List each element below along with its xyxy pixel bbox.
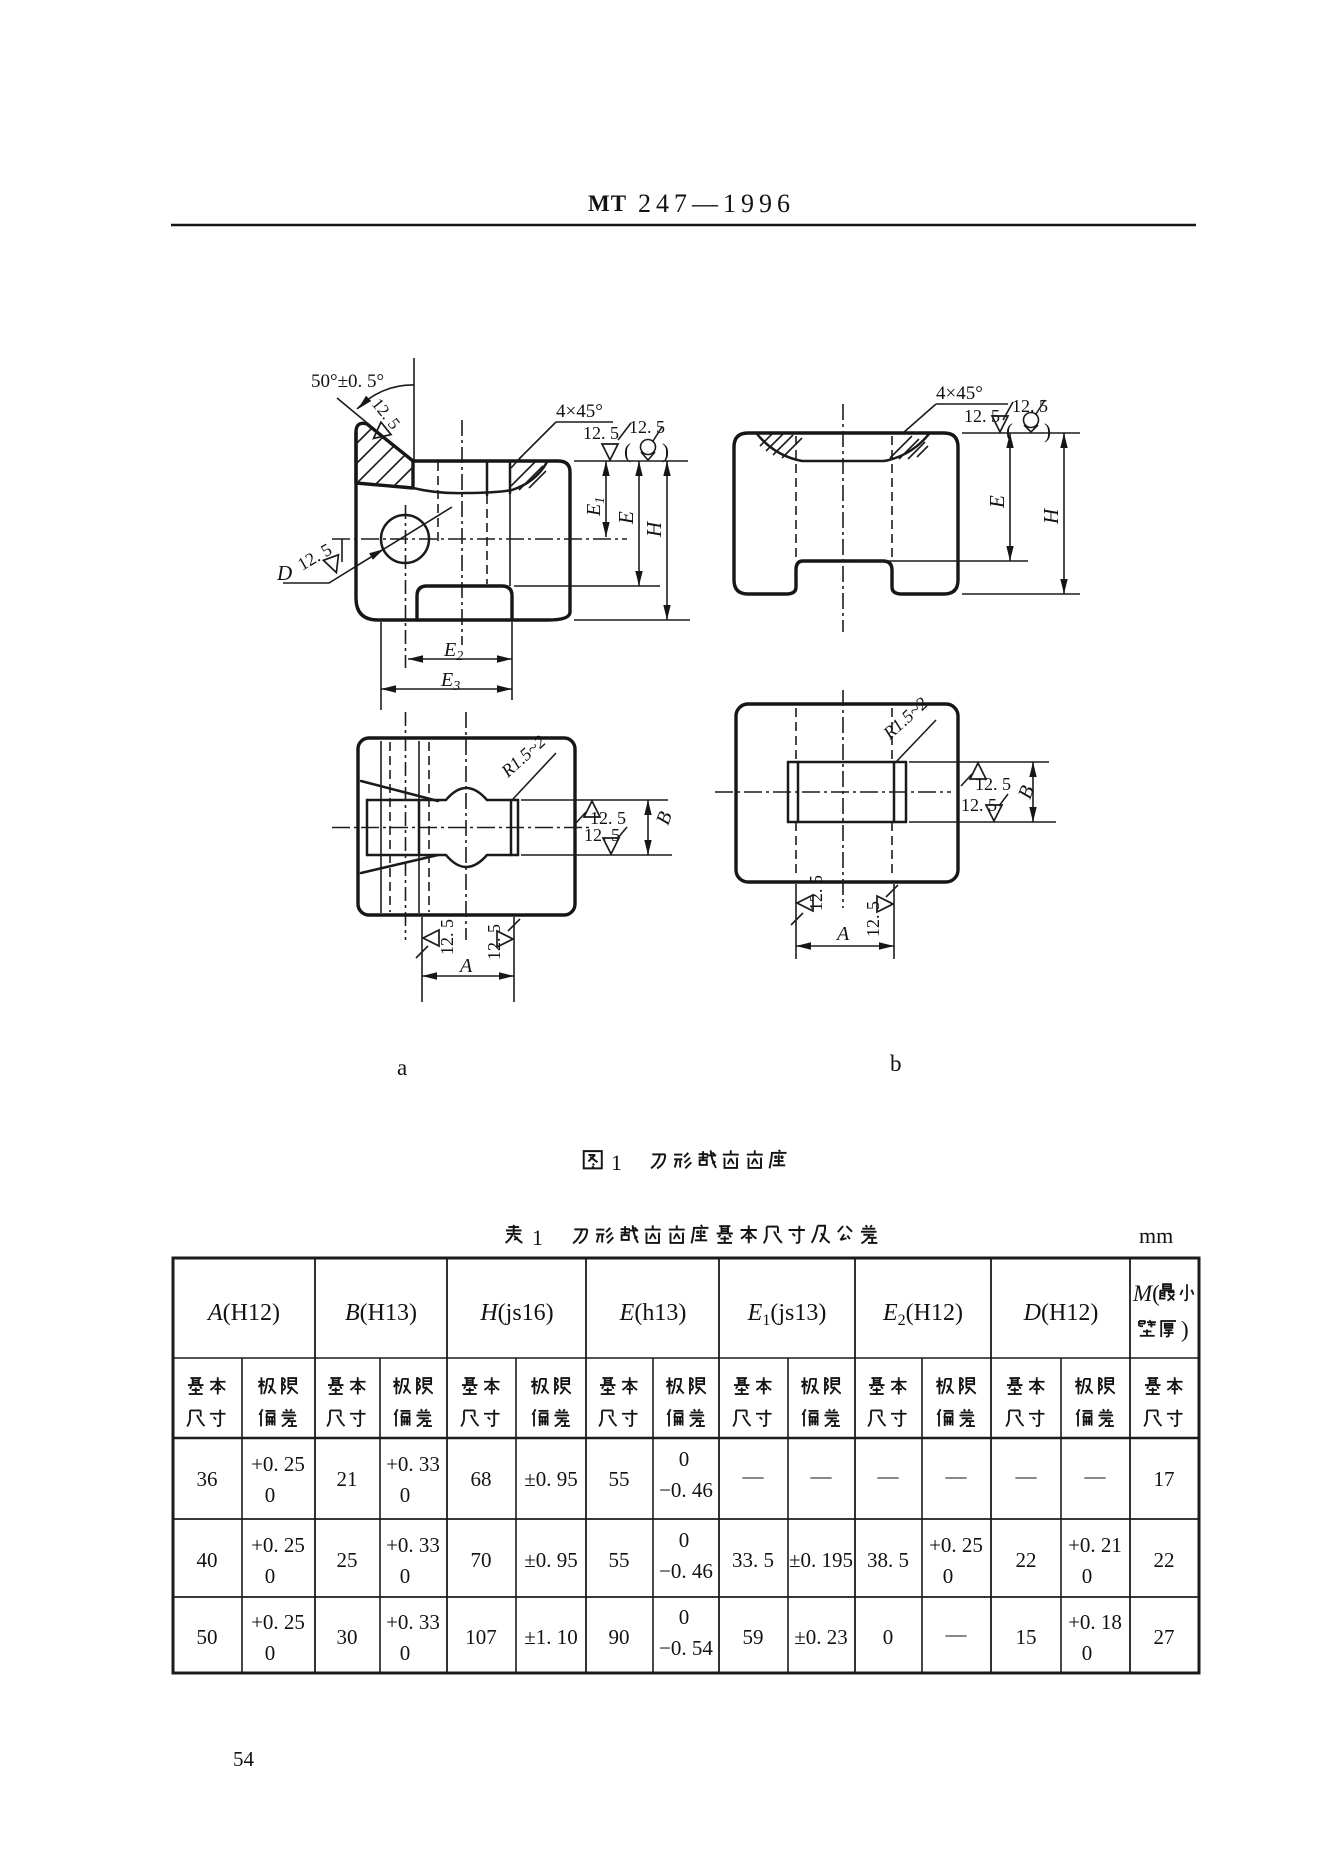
svg-text:12. 5: 12. 5 (975, 774, 1011, 794)
svg-text:0: 0 (1082, 1564, 1093, 1588)
svg-text:90: 90 (609, 1625, 630, 1649)
svg-text:±0. 23: ±0. 23 (794, 1625, 848, 1649)
svg-text:H: H (1039, 507, 1063, 525)
svg-text:+0. 25: +0. 25 (251, 1610, 305, 1634)
svg-text:): ) (662, 439, 669, 463)
svg-text:0: 0 (679, 1447, 690, 1471)
svg-text:0: 0 (679, 1528, 690, 1552)
svg-text:55: 55 (609, 1467, 630, 1491)
svg-text:—: — (1084, 1464, 1107, 1488)
svg-text:12. 5: 12. 5 (863, 901, 883, 937)
svg-text:H(js16): H(js16) (479, 1300, 553, 1326)
svg-text:M(: M( (1132, 1281, 1160, 1306)
svg-text:0: 0 (943, 1564, 954, 1588)
svg-text:D(H12): D(H12) (1023, 1300, 1099, 1326)
svg-text:12. 5: 12. 5 (584, 825, 620, 845)
svg-text:40: 40 (197, 1548, 218, 1572)
svg-text:±0. 95: ±0. 95 (524, 1548, 578, 1572)
svg-text:—: — (945, 1464, 968, 1488)
svg-text:+0. 18: +0. 18 (1068, 1610, 1122, 1634)
svg-text:0: 0 (1082, 1641, 1093, 1665)
svg-text:25: 25 (337, 1548, 358, 1572)
svg-text:0: 0 (679, 1605, 690, 1629)
svg-text:—: — (877, 1464, 900, 1488)
svg-text:22: 22 (1016, 1548, 1037, 1572)
svg-text:A: A (458, 955, 473, 977)
svg-text:1: 1 (532, 1225, 543, 1250)
svg-text:30: 30 (337, 1625, 358, 1649)
svg-text:27: 27 (1154, 1625, 1175, 1649)
svg-text:—: — (742, 1464, 765, 1488)
svg-text:12. 5: 12. 5 (583, 423, 619, 443)
svg-text:E2(H12): E2(H12) (882, 1300, 963, 1329)
svg-text:0: 0 (265, 1564, 276, 1588)
svg-text:38. 5: 38. 5 (867, 1548, 909, 1572)
svg-text:±0. 195: ±0. 195 (789, 1548, 853, 1572)
svg-text:50°±0. 5°: 50°±0. 5° (311, 371, 384, 392)
svg-text:−0. 46: −0. 46 (659, 1559, 713, 1583)
svg-text:54: 54 (233, 1747, 255, 1771)
svg-text:E1(js13): E1(js13) (747, 1300, 827, 1329)
svg-text:): ) (1181, 1317, 1189, 1342)
svg-text:15: 15 (1016, 1625, 1037, 1649)
svg-text:33. 5: 33. 5 (732, 1548, 774, 1572)
svg-text:—: — (1015, 1464, 1038, 1488)
svg-text:): ) (1044, 419, 1051, 443)
svg-text:D: D (276, 561, 292, 585)
svg-text:70: 70 (471, 1548, 492, 1572)
svg-text:0: 0 (400, 1483, 411, 1507)
svg-text:−0. 46: −0. 46 (659, 1478, 713, 1502)
svg-text:−0. 54: −0. 54 (659, 1636, 713, 1660)
svg-text:+0. 33: +0. 33 (386, 1533, 440, 1557)
svg-text:247—1996: 247—1996 (638, 189, 795, 218)
svg-text:12. 5: 12. 5 (484, 924, 504, 960)
svg-text:E: E (614, 511, 638, 525)
svg-text:0: 0 (265, 1641, 276, 1665)
svg-text:+0. 21: +0. 21 (1068, 1533, 1122, 1557)
svg-text:12. 5: 12. 5 (806, 875, 826, 911)
svg-text:A: A (835, 923, 850, 945)
svg-text:A(H12): A(H12) (206, 1300, 280, 1326)
svg-text:b: b (890, 1051, 902, 1076)
svg-text:mm: mm (1139, 1223, 1173, 1248)
svg-text:0: 0 (883, 1625, 894, 1649)
svg-text:22: 22 (1154, 1548, 1175, 1572)
svg-text:±0. 95: ±0. 95 (524, 1467, 578, 1491)
svg-text:E(h13): E(h13) (619, 1300, 687, 1326)
svg-text:12. 5: 12. 5 (629, 417, 665, 437)
svg-text:E: E (985, 495, 1009, 509)
svg-text:(: ( (624, 439, 631, 463)
svg-text:a: a (397, 1055, 407, 1080)
svg-text:59: 59 (743, 1625, 764, 1649)
svg-text:—: — (810, 1464, 833, 1488)
svg-text:+0. 25: +0. 25 (929, 1533, 983, 1557)
svg-text:0: 0 (265, 1483, 276, 1507)
svg-text:12. 5: 12. 5 (437, 919, 457, 955)
svg-text:4×45°: 4×45° (556, 401, 603, 422)
svg-text:0: 0 (400, 1564, 411, 1588)
svg-text:0: 0 (400, 1641, 411, 1665)
svg-text:+0. 33: +0. 33 (386, 1610, 440, 1634)
svg-text:107: 107 (465, 1625, 497, 1649)
svg-text:21: 21 (337, 1467, 358, 1491)
svg-text:+0. 33: +0. 33 (386, 1452, 440, 1476)
svg-text:1: 1 (611, 1150, 622, 1175)
svg-text:MT: MT (588, 191, 627, 216)
svg-text:+0. 25: +0. 25 (251, 1452, 305, 1476)
svg-text:H: H (642, 520, 666, 538)
svg-text:50: 50 (197, 1625, 218, 1649)
svg-text:36: 36 (197, 1467, 218, 1491)
svg-text:68: 68 (471, 1467, 492, 1491)
svg-text:17: 17 (1154, 1467, 1175, 1491)
svg-text:+0. 25: +0. 25 (251, 1533, 305, 1557)
svg-text:±1. 10: ±1. 10 (524, 1625, 578, 1649)
svg-text:55: 55 (609, 1548, 630, 1572)
svg-text:—: — (945, 1622, 968, 1646)
svg-text:B(H13): B(H13) (345, 1300, 417, 1326)
svg-text:4×45°: 4×45° (936, 383, 983, 404)
